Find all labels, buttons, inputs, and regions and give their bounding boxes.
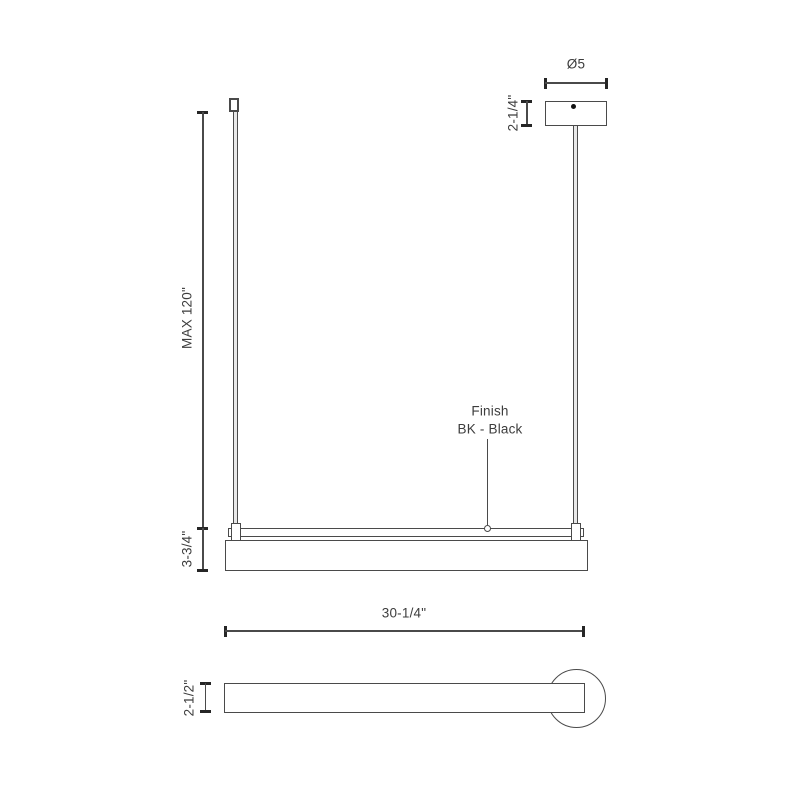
suspension-cable-right xyxy=(573,126,578,524)
finish-leader-line xyxy=(487,439,488,525)
side-body xyxy=(224,683,585,713)
dim-line xyxy=(225,630,585,632)
finish-leader-dot xyxy=(484,525,491,532)
fixture-body xyxy=(225,540,588,571)
dim-tick xyxy=(200,710,211,713)
dim-line xyxy=(205,683,207,712)
fixture-top-rail xyxy=(228,528,584,537)
dim-tick xyxy=(197,569,208,572)
dim-tick xyxy=(521,124,532,127)
suspension-cable-left xyxy=(233,110,238,524)
dim-tick xyxy=(605,78,608,89)
dim-line xyxy=(202,112,204,528)
dim-line xyxy=(545,82,606,84)
cable-gripper xyxy=(229,98,239,112)
drawing-canvas: MAX 120" 3-3/4" Ø5 xyxy=(0,0,800,800)
dim-line xyxy=(526,101,528,125)
canopy xyxy=(545,101,607,126)
dim-line xyxy=(202,528,204,570)
canopy-screw-dot xyxy=(571,104,576,109)
dim-tick xyxy=(582,626,585,637)
